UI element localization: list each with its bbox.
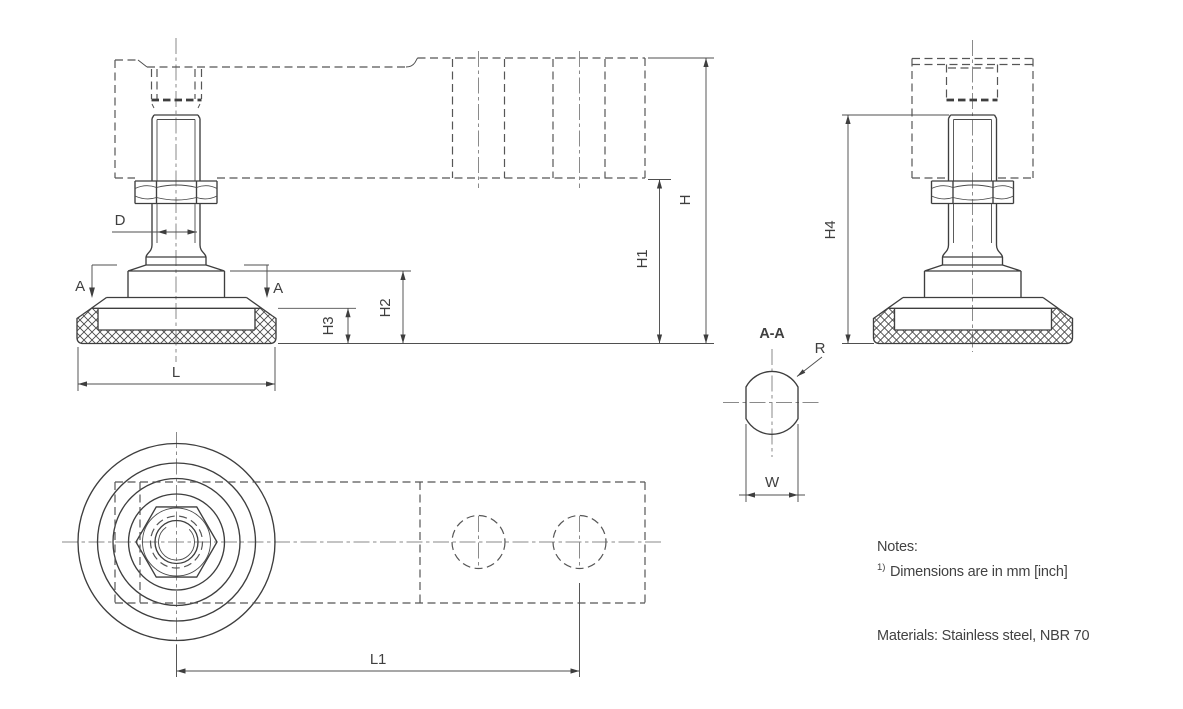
dim-label-h3: H3 <box>320 317 337 336</box>
notes-heading: Notes: <box>877 539 918 555</box>
drawing-sheet: D A A H3 H2 <box>0 0 1183 709</box>
dim-label-r: R <box>815 340 826 357</box>
section-view: A-A R W <box>723 326 826 502</box>
dim-label-h: H <box>677 195 694 206</box>
section-crosshair <box>723 349 820 457</box>
dim-label-h2: H2 <box>377 299 394 318</box>
note1-text: Dimensions are in mm [inch] <box>890 564 1068 580</box>
dim-l: L <box>78 347 275 391</box>
technical-drawing-canvas: D A A H3 H2 <box>0 0 1183 709</box>
dim-label-l: L <box>172 364 180 381</box>
section-title: A-A <box>759 326 785 342</box>
dim-r: R <box>797 340 826 377</box>
plan-view: L1 <box>62 432 663 677</box>
front-view: D A A H3 H2 <box>75 38 714 391</box>
side-view: H4 <box>822 40 1073 352</box>
dim-label-h4: H4 <box>822 221 839 240</box>
dim-label-d: D <box>115 212 126 229</box>
dim-label-h1: H1 <box>634 250 651 269</box>
section-cut-label-right: A <box>273 280 283 297</box>
dim-h: H <box>648 58 714 344</box>
section-cut-label-left: A <box>75 278 85 295</box>
section-cut-marks: A A <box>75 265 283 298</box>
note1-marker: 1) <box>877 562 885 573</box>
dim-d: D <box>112 212 197 235</box>
mounting-holes-hidden <box>453 51 606 188</box>
dim-label-w: W <box>765 474 780 491</box>
materials-text: Materials: Stainless steel, NBR 70 <box>877 628 1090 644</box>
notes-block: Notes: 1) Dimensions are in mm [inch] Ma… <box>877 539 1090 644</box>
dim-h3: H3 <box>278 308 356 343</box>
dim-h1: H1 <box>634 180 671 344</box>
dim-label-l1: L1 <box>370 651 386 668</box>
dim-l1: L1 <box>177 583 580 677</box>
